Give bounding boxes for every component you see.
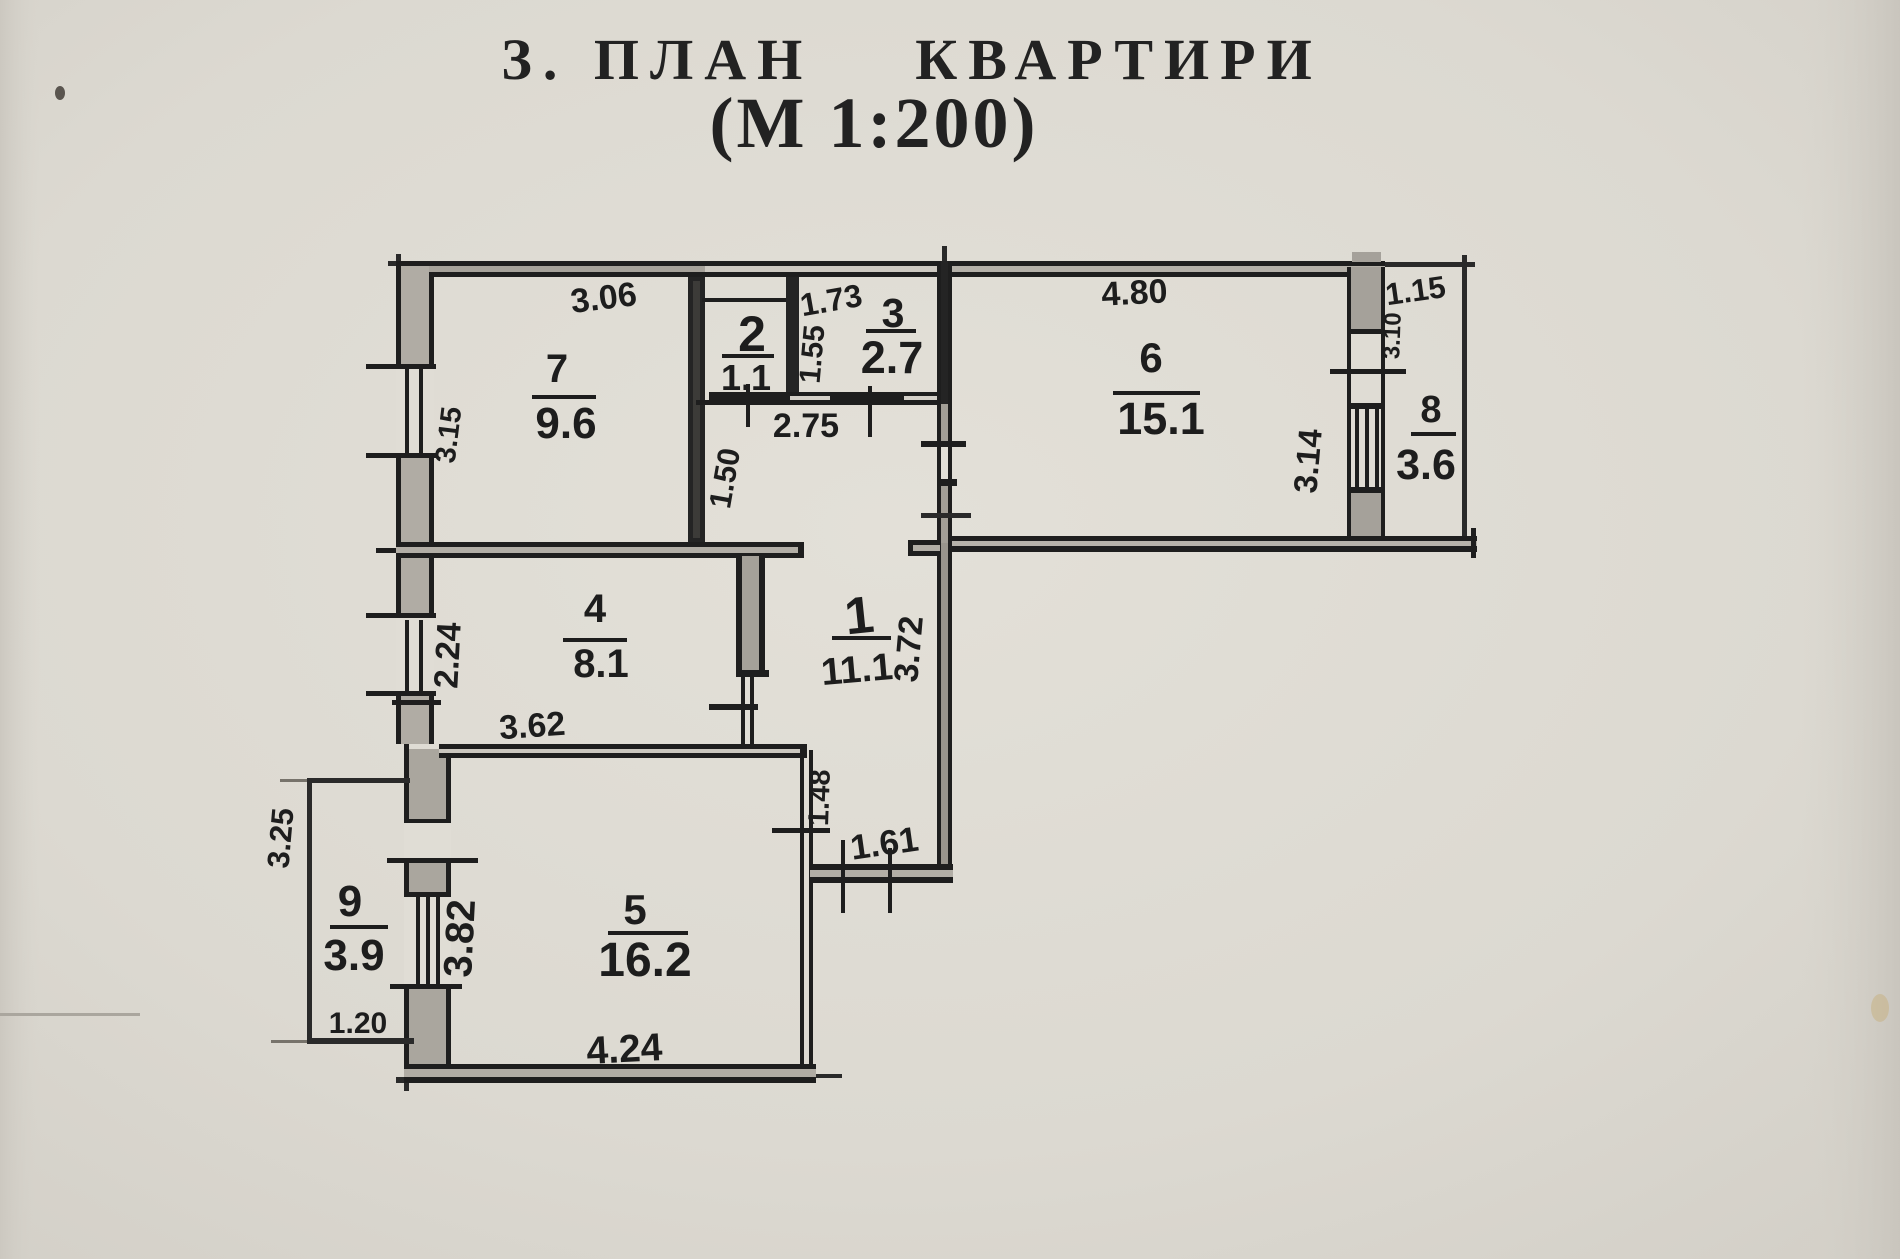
svg-text:3.25: 3.25 (260, 807, 300, 870)
svg-text:2: 2 (738, 306, 766, 362)
svg-text:3.72: 3.72 (887, 614, 931, 683)
svg-text:11.1: 11.1 (819, 646, 894, 694)
svg-text:3.9: 3.9 (323, 931, 384, 980)
svg-text:1.55: 1.55 (794, 324, 832, 385)
svg-text:5: 5 (623, 886, 646, 933)
svg-text:3.62: 3.62 (498, 705, 567, 748)
svg-text:(М 1:200): (М 1:200) (710, 83, 1039, 163)
svg-text:3.6: 3.6 (1396, 441, 1456, 489)
svg-text:3.06: 3.06 (568, 275, 638, 321)
svg-text:8: 8 (1420, 389, 1441, 431)
svg-text:15.1: 15.1 (1117, 393, 1205, 444)
svg-text:8.1: 8.1 (573, 642, 629, 686)
svg-text:1.20: 1.20 (329, 1007, 387, 1040)
svg-text:4: 4 (584, 587, 607, 631)
svg-text:9.6: 9.6 (535, 399, 596, 448)
svg-text:2.75: 2.75 (773, 407, 839, 445)
svg-text:4.80: 4.80 (1100, 272, 1168, 313)
svg-text:3.15: 3.15 (430, 405, 469, 465)
svg-text:1.48: 1.48 (803, 769, 837, 827)
svg-text:9: 9 (338, 877, 362, 926)
svg-text:3.14: 3.14 (1286, 427, 1329, 495)
svg-text:6: 6 (1139, 334, 1162, 381)
svg-text:3.82: 3.82 (436, 898, 484, 978)
svg-text:3.10: 3.10 (1378, 312, 1407, 360)
svg-text:2.7: 2.7 (861, 332, 924, 383)
svg-text:2.24: 2.24 (427, 621, 468, 689)
svg-text:1.1: 1.1 (721, 357, 771, 398)
svg-text:7: 7 (546, 347, 568, 391)
svg-text:16.2: 16.2 (598, 934, 691, 987)
svg-text:4.24: 4.24 (585, 1026, 663, 1073)
